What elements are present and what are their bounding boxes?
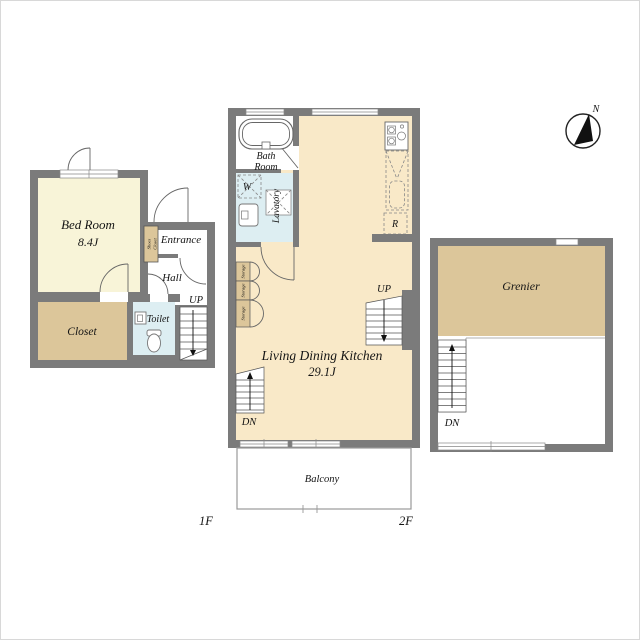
bedroom-door-gap (100, 292, 128, 302)
ldk-size-label: 29.1J (308, 365, 337, 379)
grenier-label: Grenier (502, 279, 540, 293)
1f-stairs-up (180, 307, 207, 360)
closet-label: Closet (67, 326, 97, 338)
1f-up-label: UP (189, 295, 204, 306)
toilet-label: Toilet (147, 314, 170, 325)
bathtub-icon (239, 119, 293, 149)
balcony-label: Balcony (305, 474, 340, 485)
hall-label: Hall (161, 272, 182, 284)
lavatory-door-gap (261, 242, 293, 247)
storage-label-2: Storage (241, 283, 246, 297)
toilet-icon (147, 330, 161, 352)
attic-top-window (556, 239, 578, 245)
attic-stairs-down (438, 340, 466, 412)
2f-up-label: UP (377, 284, 392, 295)
2f-top-window-1 (246, 109, 284, 115)
floor1-label: 1F (199, 514, 213, 528)
shoe-closet-label-1: Shoes (147, 239, 152, 250)
floorplan-page: Shoes Closet (0, 0, 640, 640)
bathroom-door-gap (293, 146, 299, 170)
bath-block-right-wall (293, 116, 299, 247)
floor2-label: 2F (399, 514, 413, 528)
2f-stairs-up (366, 296, 402, 345)
compass-north-label: N (592, 104, 601, 115)
storage-label-1: Storage (241, 264, 246, 278)
bedroom-window (60, 170, 118, 178)
attic-plan: Grenier DN (430, 238, 613, 452)
lavatory-label: Lavatory (272, 188, 282, 224)
washbasin-icon (239, 204, 258, 226)
entrance-label: Entrance (160, 234, 201, 246)
2f-dn-label: DN (241, 417, 258, 428)
bedroom-label: Bed Room (61, 217, 115, 232)
attic-dn-label: DN (444, 418, 461, 429)
kitchen-wall-stub (372, 234, 412, 242)
stove-icon (385, 122, 408, 150)
toilet-sink-icon (135, 312, 146, 324)
refrigerator-label: R (391, 219, 398, 230)
ldk-label: Living Dining Kitchen (261, 348, 383, 363)
2f-stairs-down (236, 367, 264, 413)
bedroom-size-label: 8.4J (78, 235, 99, 249)
stair-wall-stub (402, 290, 412, 350)
toilet-door-gap (150, 294, 168, 302)
bathroom-label-1: Bath (257, 151, 276, 162)
shoe-closet-label-2: Closet (153, 238, 158, 250)
storage-label-3: Storage (241, 306, 246, 320)
floor-2f-plan: W Lavatory R (228, 108, 420, 513)
2f-top-window-2 (312, 109, 378, 115)
bathroom-label-2: Room (253, 162, 277, 173)
shoe-closet: Shoes Closet (144, 226, 158, 262)
floorplan-canvas: Shoes Closet (0, 0, 640, 640)
